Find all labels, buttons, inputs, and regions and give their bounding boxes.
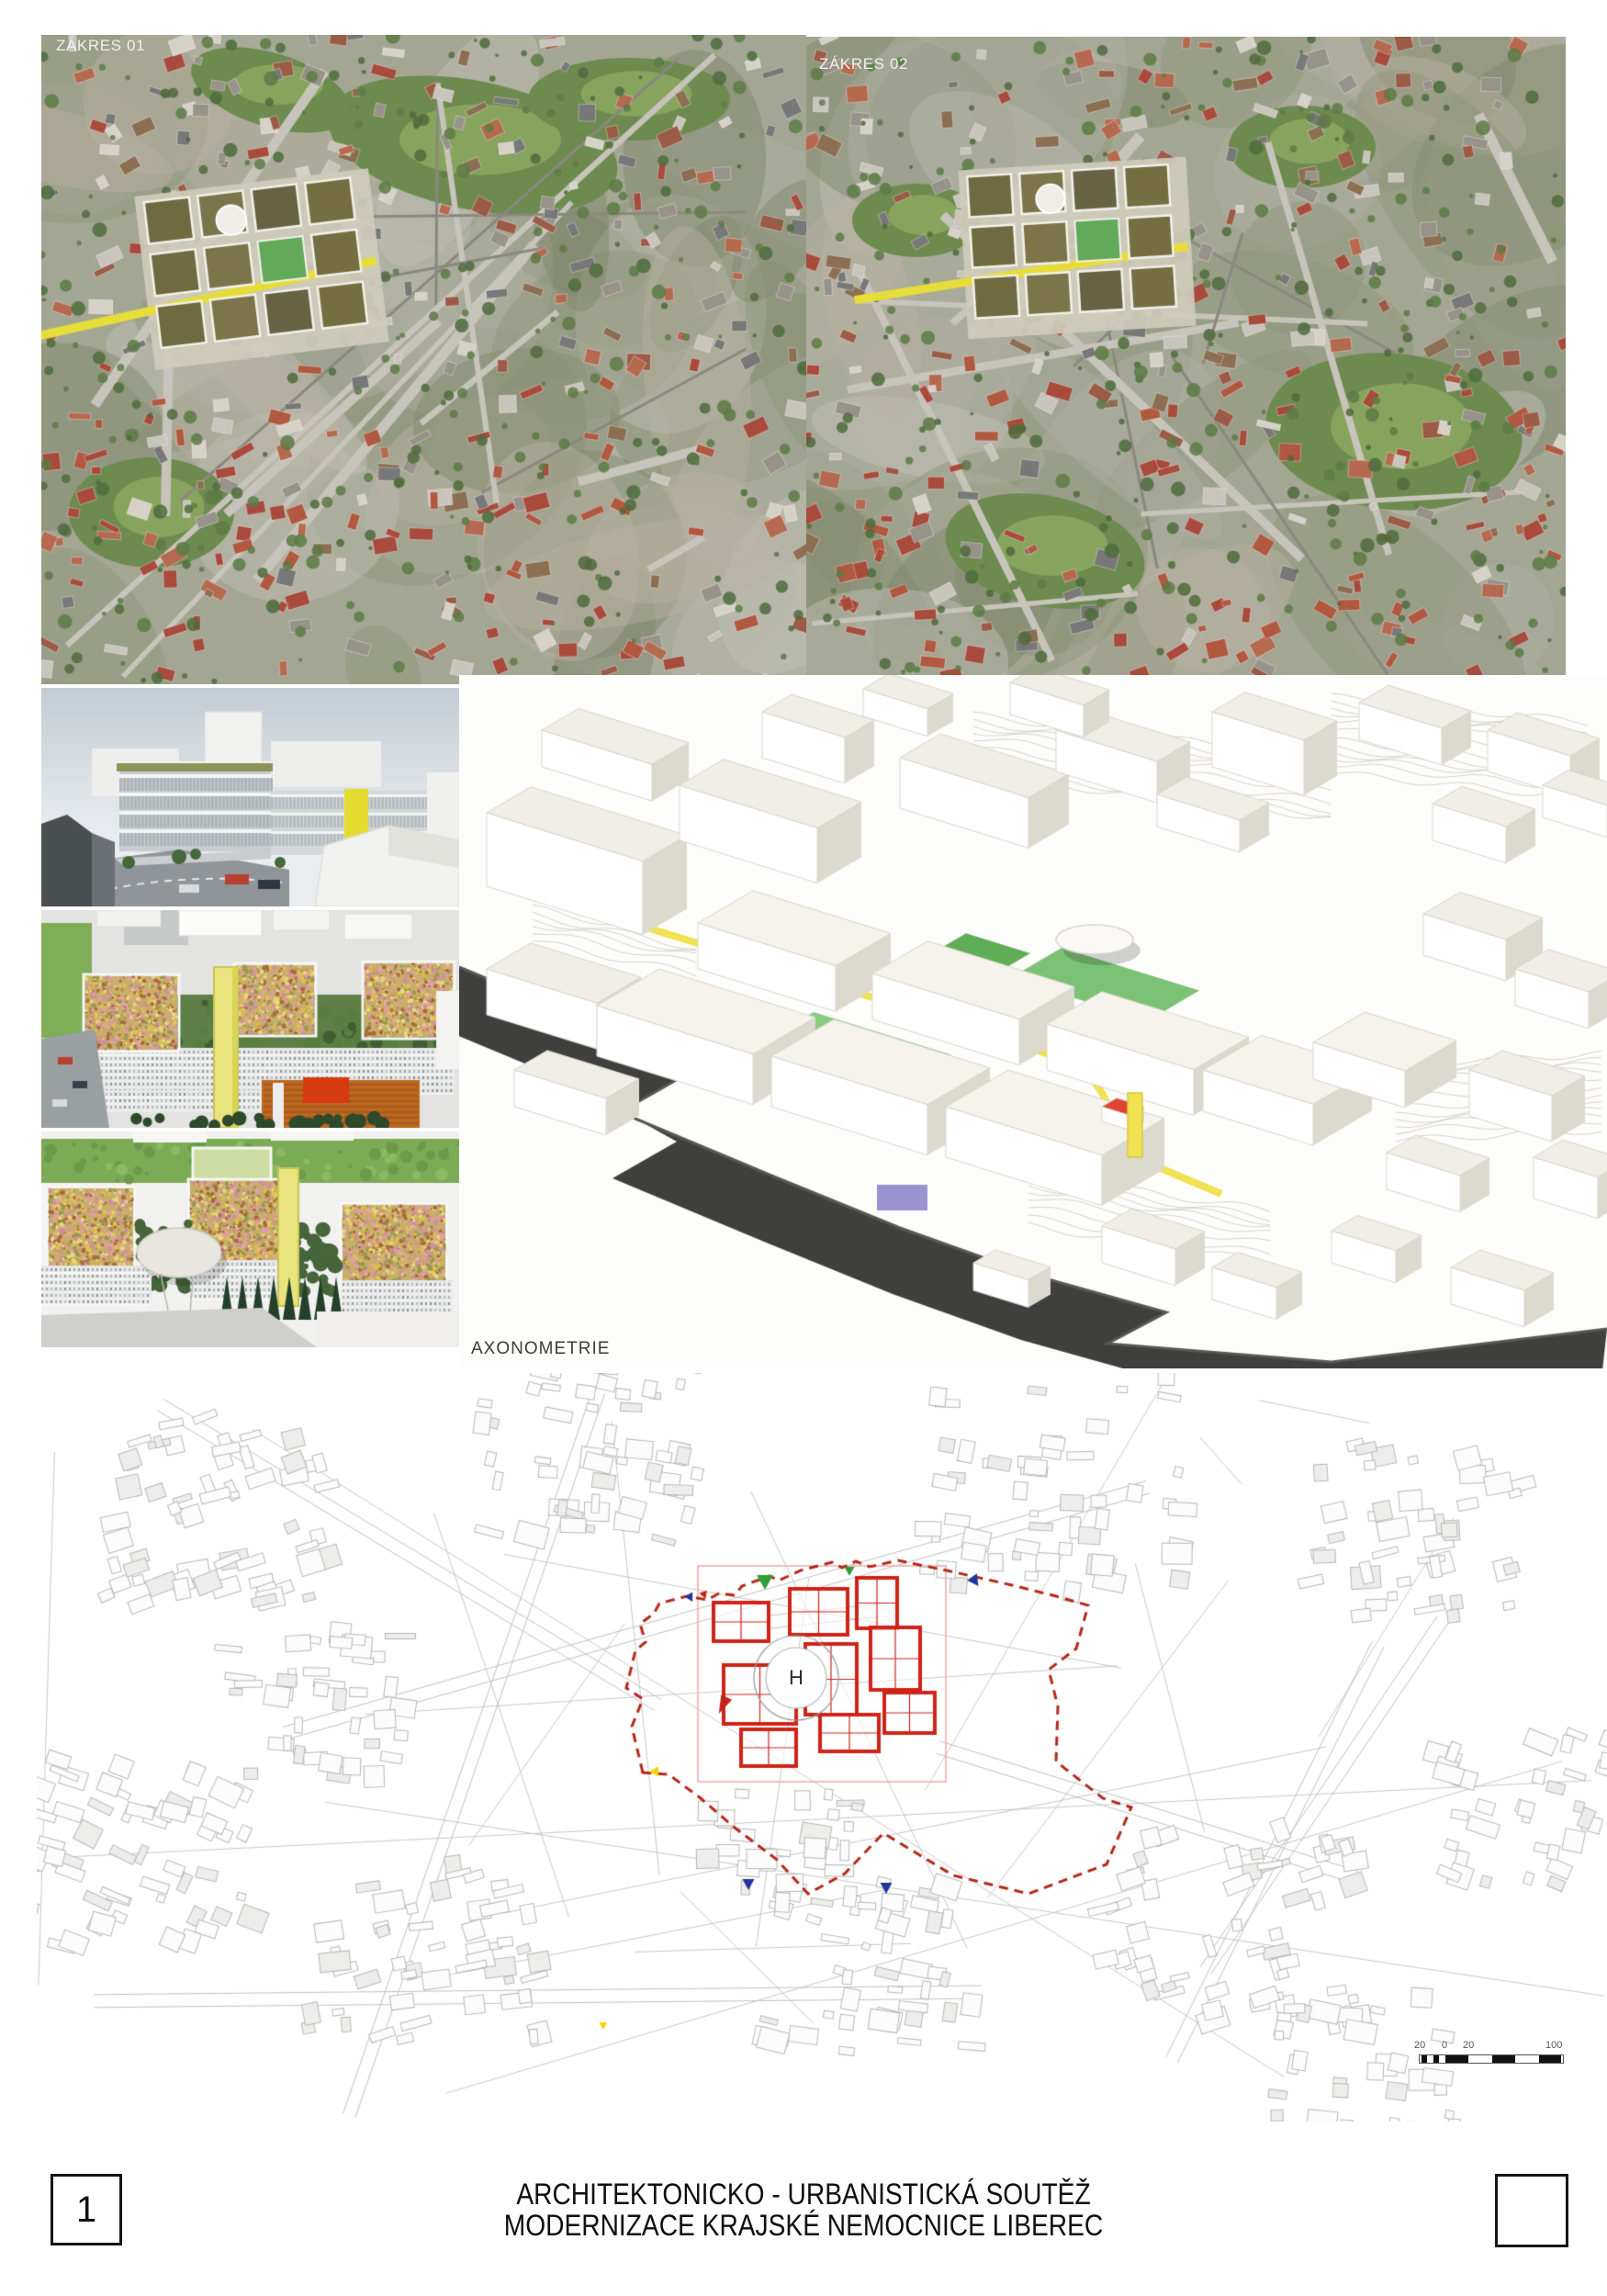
aerial-photomontage-2: ZÁKRES 02 [806, 37, 1566, 684]
street-view-render [41, 688, 459, 906]
board-title-line1: ARCHITEKTONICKO - URBANISTICKÁ SOUTĚŽ [96, 2178, 1511, 2210]
board-title: ARCHITEKTONICKO - URBANISTICKÁ SOUTĚŽ MO… [0, 2178, 1607, 2241]
axonometry-image [459, 675, 1607, 1368]
site-plan-drawing [37, 1373, 1607, 2122]
roofscape-render-2 [41, 1131, 459, 1347]
roofscape-render-1 [41, 910, 459, 1128]
aerial-photomontage-1: ZÁKRES 01 [41, 35, 806, 684]
board-title-line2: MODERNIZACE KRAJSKÉ NEMOCNICE LIBEREC [96, 2210, 1511, 2241]
scale-bar-rule [1419, 2054, 1564, 2064]
roofscape-render-2-image [41, 1131, 459, 1347]
scale-bar: 20 0 20 100 [1419, 2040, 1566, 2069]
scale-bar-label: 20 [1414, 2040, 1425, 2051]
site-plan: H 20 0 20 100 [37, 1373, 1607, 2122]
aerial-photomontage-1-image [41, 35, 806, 684]
photo2-label: ZÁKRES 02 [819, 55, 908, 73]
photo1-label: ZÁKRES 01 [56, 37, 145, 55]
scale-bar-label: 100 [1545, 2040, 1562, 2051]
axonometry-caption: AXONOMETRIE [471, 1339, 610, 1359]
helipad-marker: H [780, 1661, 813, 1694]
street-view-render-image [41, 688, 459, 906]
scale-bar-label: 20 [1463, 2040, 1474, 2051]
aerial-photomontage-2-image [806, 37, 1566, 684]
roofscape-render-1-image [41, 910, 459, 1128]
empty-stamp-box [1495, 2174, 1568, 2247]
scale-bar-label: 0 [1442, 2040, 1447, 2051]
competition-board: ZÁKRES 01 ZÁKRES 02 AXONOMETRIE SITUACE … [0, 0, 1607, 2296]
axonometry-view [459, 675, 1607, 1368]
